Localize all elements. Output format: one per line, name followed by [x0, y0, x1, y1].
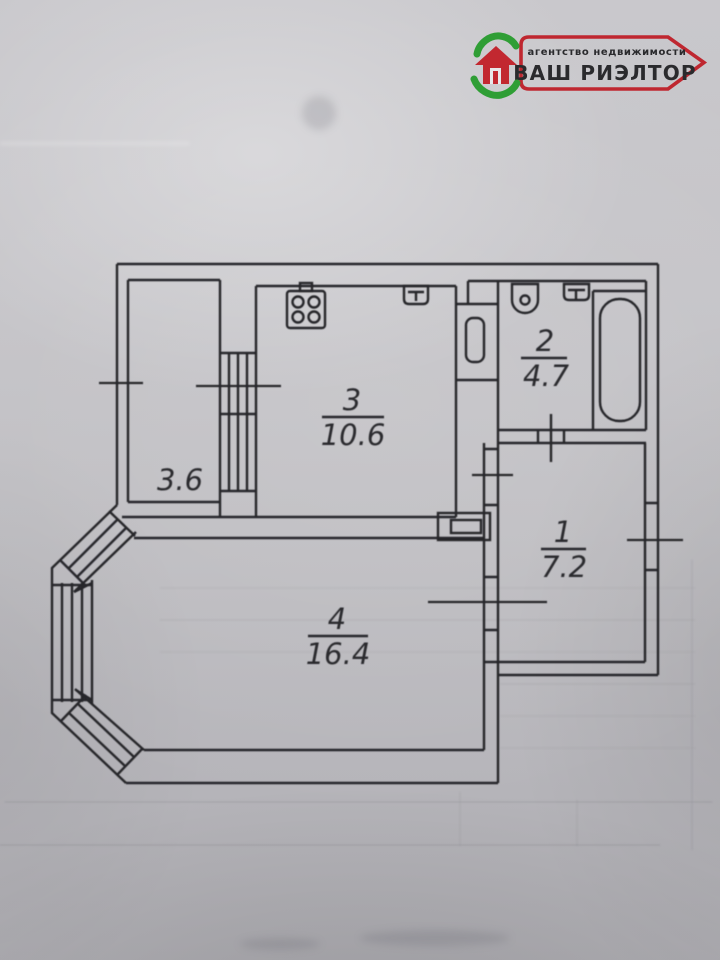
house-in-hands-icon	[474, 36, 517, 95]
photo-background: 3 10.6 2 4.7 1 7.2 4 16.4 3.6	[0, 0, 720, 960]
floor-plan-photo: 3 10.6 2 4.7 1 7.2 4 16.4 3.6	[0, 0, 720, 960]
floor-plan	[52, 264, 683, 783]
living-room-walls	[126, 750, 498, 783]
room-area: 10.6	[321, 418, 386, 452]
room-number: 3	[343, 383, 361, 417]
room-number: 4	[328, 602, 346, 636]
room-area: 4.7	[523, 359, 570, 393]
bathtub-icon	[593, 291, 646, 430]
hallway-walls	[484, 443, 658, 750]
room-area: 16.4	[306, 637, 371, 671]
room-living-label: 4 16.4	[306, 602, 371, 671]
bay-window	[52, 505, 144, 783]
agency-logo: агентство недвижимости ВАШ РИЭЛТОР	[474, 36, 704, 95]
room-area: 7.2	[541, 550, 587, 584]
room-hallway-label: 1 7.2	[541, 515, 587, 584]
stove-icon	[287, 283, 325, 328]
room-kitchen-label: 3 10.6	[321, 383, 386, 452]
room-number: 2	[536, 324, 554, 358]
bleed-through-lines	[0, 560, 712, 850]
room-bathroom-label: 2 4.7	[521, 324, 570, 393]
wash-sink-icon	[564, 284, 589, 300]
kitchen-sink-icon	[404, 286, 428, 304]
toilet-icon	[512, 284, 538, 313]
kitchen-walls	[134, 286, 484, 538]
balcony-window	[220, 353, 256, 491]
vent-duct-icon	[456, 281, 498, 380]
room-number: 1	[554, 515, 572, 549]
logo-tagline: агентство недвижимости	[528, 47, 687, 58]
logo-brand: ВАШ РИЭЛТОР	[513, 61, 697, 85]
room-labels: 3 10.6 2 4.7 1 7.2 4 16.4 3.6	[157, 324, 587, 671]
balcony-area-label: 3.6	[157, 463, 203, 497]
